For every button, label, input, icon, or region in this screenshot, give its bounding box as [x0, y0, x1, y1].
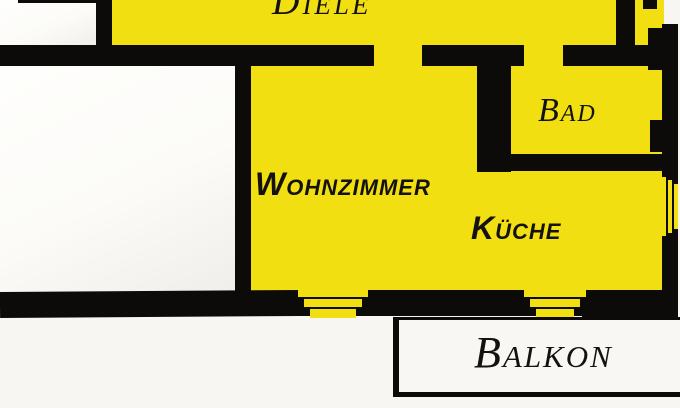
window-glazing-bar — [524, 290, 586, 297]
wall-top-edge — [18, 0, 98, 3]
window-glazing-bar — [668, 180, 672, 233]
wall-right-top-block — [648, 28, 678, 70]
window-glazing-bar — [674, 184, 678, 229]
wall-topleft-room-right — [96, 0, 112, 49]
wall-diele-bottom-left-segment — [0, 45, 374, 66]
window-glazing-bar — [662, 177, 666, 236]
window-balcony-door — [298, 290, 368, 318]
wall-bad-bottom — [496, 154, 664, 171]
wall-top-right-jog — [643, 0, 657, 9]
wall-diele-right-partition — [616, 0, 635, 50]
room-label-bad: Bad — [538, 94, 597, 128]
wall-exterior-bottom-left — [0, 290, 301, 318]
room-area-top-left — [0, 0, 98, 47]
wall-left-room-right — [235, 58, 251, 298]
window-glazing-bar — [298, 290, 368, 297]
room-label-balkon: Balkon — [474, 331, 613, 375]
window-glazing-bar — [304, 299, 362, 307]
room-label-wohnzimmer: Wohnzimmer — [255, 168, 431, 200]
window-kueche — [524, 290, 586, 318]
window-glazing-bar — [310, 309, 356, 318]
window-glazing-bar — [530, 299, 580, 307]
window-right-wall — [662, 177, 678, 236]
wall-right-bad-protrusion — [650, 120, 663, 152]
room-label-diele: Diele — [272, 0, 371, 21]
room-area-left — [0, 65, 237, 293]
room-label-kueche: Küche — [471, 212, 561, 244]
floor-plan: Diele Bad Wohnzimmer Küche Balkon — [0, 0, 680, 408]
